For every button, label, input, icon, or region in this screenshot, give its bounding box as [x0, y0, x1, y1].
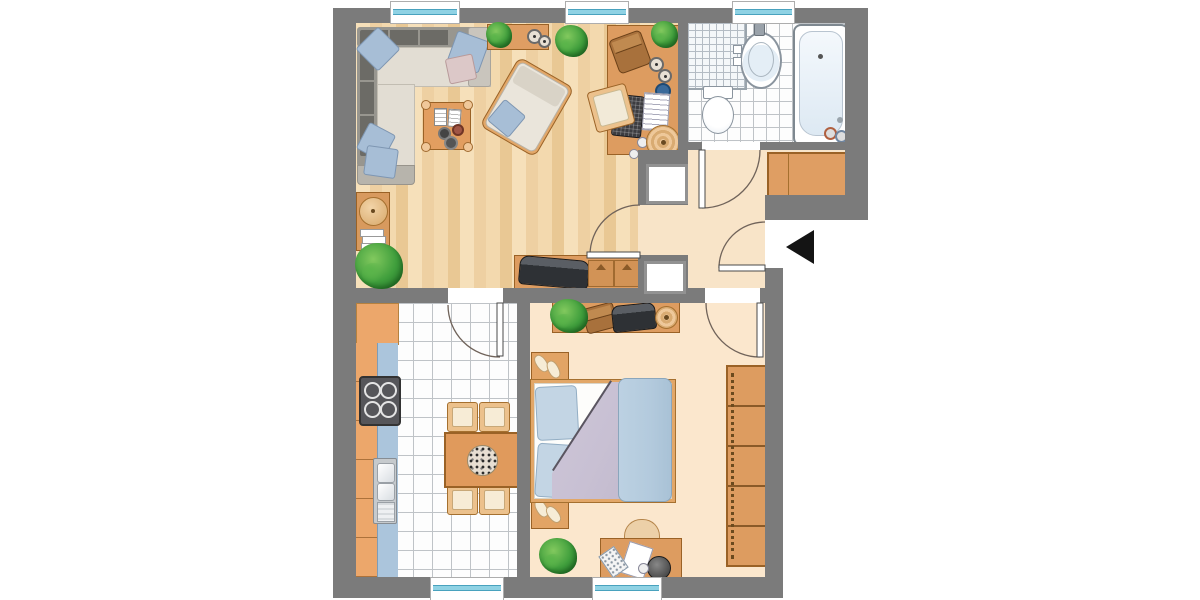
dining-table: [444, 432, 521, 488]
stove-burner: [364, 401, 381, 418]
sink-basin: [377, 463, 395, 483]
desk-plant: [651, 21, 678, 48]
bedroom-sideboard-plant: [550, 299, 588, 333]
wall-bathroom-south-west: [678, 142, 702, 150]
kitchen-tall-cabinet: [356, 303, 399, 345]
bedroom-tv: [611, 302, 658, 333]
wall-shelf: [356, 192, 390, 251]
bathtub-drain: [818, 54, 823, 59]
floor-plant-living: [355, 243, 403, 289]
window: [390, 1, 460, 24]
window-glass: [433, 585, 501, 591]
window: [732, 1, 795, 24]
tv-lowboard: [514, 255, 642, 290]
bedroom-wardrobe: [726, 365, 768, 567]
bedroom-floor-plant: [539, 538, 577, 574]
cup: [444, 136, 458, 150]
window: [592, 577, 662, 600]
table-knob: [463, 142, 473, 152]
kitchen-sink: [373, 458, 397, 524]
window-glass: [595, 585, 659, 591]
desk-bowl: [658, 69, 672, 83]
sofa-pillow: [363, 145, 399, 179]
dining-chair: [447, 485, 478, 515]
wall-bathroom-south-east: [760, 142, 845, 150]
lowboard-drawer: [614, 260, 640, 287]
sink-basin: [377, 483, 395, 501]
wall-mid-west: [356, 288, 448, 303]
bed-pillow: [535, 385, 580, 441]
exterior-wall-bottom: [333, 577, 783, 598]
exterior-wall-right-upper: [845, 8, 868, 220]
window-glass: [393, 9, 457, 15]
overflow-dot: [837, 117, 843, 123]
wall-niche: [644, 261, 686, 294]
faucet: [754, 23, 765, 36]
table-knob: [463, 100, 473, 110]
flower-centerpiece: [467, 445, 498, 476]
hall-wardrobe: [767, 152, 849, 197]
round-container: [538, 35, 551, 48]
stove: [359, 376, 401, 426]
book: [434, 108, 447, 126]
window: [430, 577, 504, 600]
coffee-table: [423, 102, 471, 150]
wall-niche: [646, 164, 688, 204]
stove-burner: [380, 401, 397, 418]
toiletry-item: [733, 57, 742, 66]
large-plant: [555, 25, 588, 57]
table-knob: [421, 142, 431, 152]
sink-drainboard: [377, 502, 395, 522]
entrance-arrow-icon: [786, 230, 814, 264]
hallway-floor: [688, 150, 765, 288]
dining-chair: [447, 402, 478, 432]
desk-bag: [608, 29, 652, 74]
bedroom-dish: [655, 306, 678, 329]
wall-kitchen-bedroom: [517, 303, 530, 577]
bedroom-desk: [600, 538, 682, 579]
exterior-wall-entrance-step: [765, 195, 868, 220]
exterior-wall-right-lower: [765, 268, 783, 598]
toilet-bowl: [702, 96, 734, 134]
desk-mouse: [638, 563, 649, 574]
window: [565, 1, 629, 24]
sideboard-plant: [486, 22, 512, 48]
folded-blanket: [618, 378, 672, 502]
bag-flap: [612, 33, 642, 54]
table-knob: [421, 100, 431, 110]
dining-chair: [479, 485, 510, 515]
dining-chair: [479, 402, 510, 432]
lowboard-drawer: [588, 260, 614, 287]
bathtub: [793, 24, 849, 146]
stove-burner: [364, 382, 381, 399]
floor-plan-canvas: [0, 0, 1200, 600]
toiletry-item: [733, 45, 742, 54]
stove-burner: [380, 382, 397, 399]
window-glass: [735, 9, 792, 15]
wall-bathroom-west: [678, 23, 688, 150]
wardrobe-handles: [731, 373, 734, 559]
exterior-wall-left: [333, 8, 356, 598]
lamp-center-dot: [371, 209, 375, 213]
cup: [452, 124, 464, 136]
tv: [518, 255, 590, 290]
washbasin: [740, 32, 782, 89]
window-glass: [568, 9, 626, 15]
hallway-door-passage: [638, 205, 688, 255]
wall-mid-east: [760, 288, 783, 303]
basin-inner: [748, 42, 774, 77]
bag-flap: [585, 305, 613, 321]
